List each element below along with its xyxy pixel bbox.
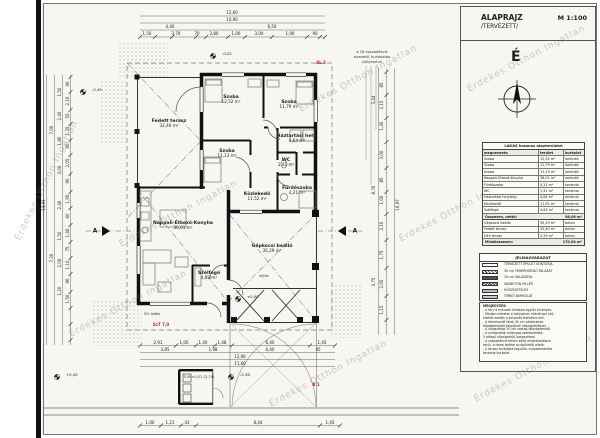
room-label: Szoba11,13 m² xyxy=(217,149,236,159)
dim-label: 70 xyxy=(194,32,199,36)
annotation: AL 2 xyxy=(316,61,326,65)
dim-label: 1,48 xyxy=(218,341,227,345)
subtotal-label: Összesen, nettó: xyxy=(485,215,517,219)
drawing-subtitle: /TERVEZETT/ xyxy=(481,24,587,30)
subtotal-value: 98,06 m² xyxy=(565,215,582,219)
room-label: Közlekedő11,52 m² xyxy=(244,192,271,202)
schedule-title: LAKÁS hasznos alapterületei xyxy=(483,143,584,150)
dim-label: 12,06 xyxy=(234,355,245,359)
legend-swatch-icon xyxy=(482,270,498,274)
annotation: 5% lejtés xyxy=(144,312,161,316)
watermark: Érdekes Otthon Ingatlan xyxy=(14,119,81,242)
annotation: ⌀ 16 csapadékvíz xyxy=(356,50,387,54)
legend-swatch-icon xyxy=(482,282,498,286)
watermark: Érdekes Otthon Ingatlan xyxy=(118,179,239,250)
legend-swatch-icon xyxy=(482,263,498,267)
total-label: Mindösszesen: xyxy=(485,240,513,244)
watermark: Érdekes Otthon Ingatlan xyxy=(268,339,389,410)
dim-label: 1,90 xyxy=(286,32,295,36)
dim-label: 2,80 xyxy=(210,32,219,36)
dim-label: 6,50 xyxy=(268,25,277,29)
dim-label: 1,10 xyxy=(66,261,70,270)
dim-label: 1,00 xyxy=(180,341,189,345)
legend-item: TÉRKŐ BURKOLAT xyxy=(480,294,586,300)
dim-label: 11,60 xyxy=(234,362,245,366)
dim-label: 1,75 xyxy=(380,251,384,260)
legend-title: JELMAGYARÁZAT xyxy=(480,254,586,262)
dim-label: 3,00 xyxy=(255,32,264,36)
level-label: ±0,00 xyxy=(247,295,259,299)
dim-label: 3,75 xyxy=(372,278,376,287)
dim-label: 1,21 xyxy=(166,421,175,425)
dim-label: 6,40 xyxy=(266,348,275,352)
dim-label: 4,40 xyxy=(166,25,175,29)
dim-label: 1,40 xyxy=(199,341,208,345)
dim-label: 90 xyxy=(66,178,70,183)
legend-swatch-icon xyxy=(482,289,498,293)
dim-label: 1,00 xyxy=(146,421,155,425)
dim-label: 1,98 xyxy=(209,348,218,352)
dim-label: 1,15 xyxy=(380,306,384,315)
dim-label: 1,40 xyxy=(380,122,384,131)
dim-label: 2,10 xyxy=(66,97,70,106)
dim-label: 10,90 xyxy=(226,18,237,22)
dim-label: 2,40 xyxy=(58,201,62,210)
dim-label: 2,91 xyxy=(154,341,163,345)
schedule-column: megnevezés xyxy=(483,150,539,155)
dim-label: 1,50 xyxy=(66,295,70,304)
dim-label: 8,44 xyxy=(254,421,263,425)
dim-label: 1,50 xyxy=(58,88,62,97)
room-label: Szoba12,52 m² xyxy=(221,95,240,105)
schedule-subtotal: Összesen, nettó: 98,06 m² xyxy=(483,214,584,221)
dim-label: 2,00 xyxy=(58,259,62,268)
dim-label: 8,76 xyxy=(372,186,376,195)
dim-label: 75 xyxy=(66,246,70,251)
level-label: -0,36 xyxy=(240,373,250,377)
room-label: Gépkocsi beálló35,29 m² xyxy=(252,244,293,254)
dim-label: 45 xyxy=(315,348,320,352)
title-block: ALAPRAJZ M 1:100 /TERVEZETT/ xyxy=(461,7,595,41)
dim-label: 1,95 xyxy=(66,195,70,204)
schedule-total: Mindösszesen: 170,04 m² xyxy=(483,239,584,245)
level-label: -0,02 xyxy=(222,52,232,56)
drawing-title: ALAPRAJZ xyxy=(481,13,523,22)
dim-label: 85 xyxy=(380,82,384,87)
dim-label: 85 xyxy=(380,177,384,182)
dim-label: 7,20 xyxy=(50,254,54,263)
dim-label: 3,00 xyxy=(380,151,384,160)
dim-label: 55 xyxy=(66,113,70,118)
dim-label: 1,50 xyxy=(58,232,62,241)
section-marker-label: A xyxy=(353,228,358,235)
legend: JELMAGYARÁZAT TERVEZETT ÉPÜLET KONTÚRJA3… xyxy=(479,253,587,301)
dim-label: 14,91 xyxy=(42,199,46,210)
total-value: 170,04 m² xyxy=(563,240,582,244)
dim-label: 1,20 xyxy=(58,287,62,296)
dim-label: 1,00 xyxy=(380,196,384,205)
note-line: kerámia burkolat. xyxy=(483,352,583,356)
north-label: É xyxy=(511,49,521,65)
section-marker-label: A xyxy=(93,228,98,235)
dim-label: 1,40 xyxy=(66,229,70,238)
dim-label: 3,85 xyxy=(161,348,170,352)
dim-label: 6,40 xyxy=(266,341,275,345)
dim-label: 43 xyxy=(184,421,189,425)
dim-label: 16,97 xyxy=(396,199,400,210)
dim-label: 2,05 xyxy=(66,159,70,168)
schedule-column: burkolat xyxy=(564,150,584,155)
dim-label: 1,45 xyxy=(318,341,327,345)
room-schedule: LAKÁS hasznos alapterületei megnevezéste… xyxy=(482,142,585,246)
dim-label: 2,10 xyxy=(380,222,384,231)
room-label: Szoba11,79 m² xyxy=(279,100,298,110)
dim-label: 2,15 xyxy=(380,101,384,110)
dim-label: 2,40 xyxy=(58,112,62,121)
level-label: -0,45 xyxy=(92,88,102,92)
dim-label: 12,60 xyxy=(226,11,237,15)
annotation: SzT 7,0 xyxy=(153,323,169,327)
schedule-column: terület xyxy=(539,150,564,155)
dim-label: 60 xyxy=(66,213,70,218)
annotation: lejtés xyxy=(259,274,269,278)
dim-label: 7,00 xyxy=(50,126,54,135)
dim-label: 90 xyxy=(312,32,317,36)
dim-label: 90 xyxy=(66,81,70,86)
room-label: Fedett terasz32,40 m² xyxy=(152,119,187,129)
dim-label: 3,70 xyxy=(172,32,181,36)
scanned-sheet: Fedett terasz32,40 m²Szoba12,52 m²Szoba1… xyxy=(0,0,600,438)
annotation: 3,50±0,02 (2,74) xyxy=(184,375,215,379)
room-label: Fürdőszoba4,21 m² xyxy=(282,186,312,196)
legend-swatch-icon xyxy=(482,295,498,299)
level-label: +0,45 xyxy=(66,373,78,377)
dim-label: 90 xyxy=(66,278,70,283)
dim-label: 1,00 xyxy=(232,32,241,36)
room-label: Háztartási hely.4,64 m² xyxy=(277,134,318,144)
room-label: Szélfogó4,83 m² xyxy=(198,271,220,281)
dim-label: 1,45 xyxy=(326,421,335,425)
drawing-scale: M 1:100 xyxy=(558,14,587,22)
dim-label: 2,00 xyxy=(380,280,384,289)
watermark: Érdekes Otthon Ingatlan xyxy=(68,269,189,340)
legend-swatch-icon xyxy=(482,276,498,280)
dim-label: 1,50 xyxy=(143,32,152,36)
title-panel: ALAPRAJZ M 1:100 /TERVEZETT/ É LAKÁS has… xyxy=(460,6,596,372)
room-label: WC1,41 m² xyxy=(278,158,294,168)
notes-block: MEGJEGYZÉS:- A terv a műszaki leírással … xyxy=(479,302,587,362)
dim-label: 3,44 xyxy=(372,96,376,105)
